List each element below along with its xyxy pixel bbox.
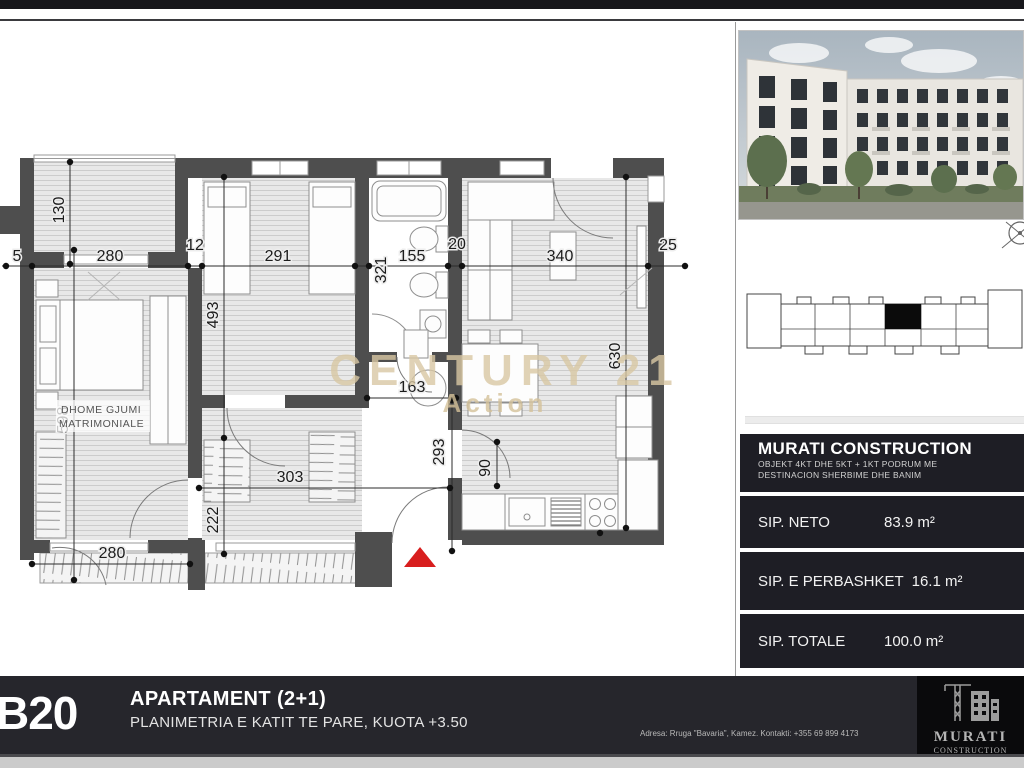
sheet-subtitle: PLANIMETRIA E KATIT TE PARE, KUOTA +3.50 [130, 714, 468, 731]
wardrobe [309, 432, 355, 502]
stat-value: 100.0 m² [884, 633, 943, 650]
company-desc-line1: OBJEKT 4KT DHE 5KT + 1KT PODRUM ME [758, 459, 1024, 470]
tv-stand [637, 226, 646, 308]
svg-text:DHOME GJUMI: DHOME GJUMI [61, 404, 141, 416]
dim-label: 291 [265, 248, 292, 265]
dim-label: 90 [477, 459, 494, 477]
dim-label: 20 [448, 236, 466, 253]
nightstand [36, 392, 58, 409]
stat-total-area: SIP. TOTALE 100.0 m² [740, 614, 1024, 668]
dim-label: 155 [399, 248, 426, 265]
wardrobe [204, 440, 250, 502]
company-address: Adresa: Rruga "Bavaria", Kamez. Kontakti… [640, 729, 858, 738]
chair [500, 330, 522, 343]
closet [36, 432, 66, 538]
dim-label: 303 [277, 469, 304, 486]
logo-name: MURATI [917, 729, 1024, 746]
stat-value: 83.9 m² [884, 514, 935, 531]
stat-label: SIP. NETO [758, 514, 876, 531]
dim-label: 130 [51, 197, 68, 224]
floor-plan: 5 280 12 291 321 155 20 340 25 130 493 5… [0, 130, 736, 600]
dim-label: 280 [99, 545, 126, 562]
dim-label: 321 [373, 257, 390, 284]
site-plan-key [745, 282, 1024, 360]
top-black-bar [0, 0, 1024, 9]
nightstand [36, 280, 58, 297]
dim-label: 222 [205, 507, 222, 534]
faint-guide-band [745, 416, 1024, 424]
stat-net-area: SIP. NETO 83.9 m² [740, 496, 1024, 548]
stat-shared-area: SIP. E PERBASHKET 16.1 m² [740, 552, 1024, 610]
dim-label: 340 [547, 248, 574, 265]
svg-text:MATRIMONIALE: MATRIMONIALE [59, 418, 144, 430]
company-title: MURATI CONSTRUCTION [758, 439, 1024, 459]
dim-label: 12 [186, 237, 204, 254]
dishwasher [551, 498, 581, 526]
unit-code: B20 [0, 686, 77, 740]
stat-label: SIP. TOTALE [758, 633, 876, 650]
kitchen-sink [509, 498, 545, 526]
entry-arrow [404, 547, 436, 567]
compass-icon [1000, 216, 1024, 252]
crane-building-icon [941, 679, 1001, 723]
stat-label: SIP. E PERBASHKET [758, 573, 904, 590]
company-panel: MURATI CONSTRUCTION OBJEKT 4KT DHE 5KT +… [740, 434, 1024, 492]
stat-value: 16.1 m² [912, 573, 963, 590]
chair [468, 330, 490, 343]
floorplan-sheet: { "plan": { "dims": { "d5": "5", "d280_t… [0, 0, 1024, 768]
top-rule-line [0, 19, 1024, 21]
page-bottom-strip [0, 757, 1024, 768]
svg-text:Action: Action [443, 388, 548, 418]
road [739, 202, 1023, 219]
sheet-title: APARTAMENT (2+1) [130, 688, 326, 711]
corner-cabinet [618, 460, 658, 530]
building [747, 59, 1023, 201]
dim-label: 25 [659, 237, 677, 254]
sofa [468, 182, 554, 220]
company-desc-line2: DESTINACION SHERBIME DHE BANIM [758, 470, 1024, 481]
dim-label: 293 [431, 439, 448, 466]
building-rendering [738, 30, 1024, 220]
company-logo: MURATI CONSTRUCTION [917, 676, 1024, 754]
highlighted-unit [885, 304, 921, 329]
dim-label: 280 [97, 248, 124, 265]
dim-label: 493 [205, 302, 222, 329]
room-label: DHOME GJUMI MATRIMONIALE [56, 400, 150, 432]
dim-label: 5 [13, 248, 22, 265]
